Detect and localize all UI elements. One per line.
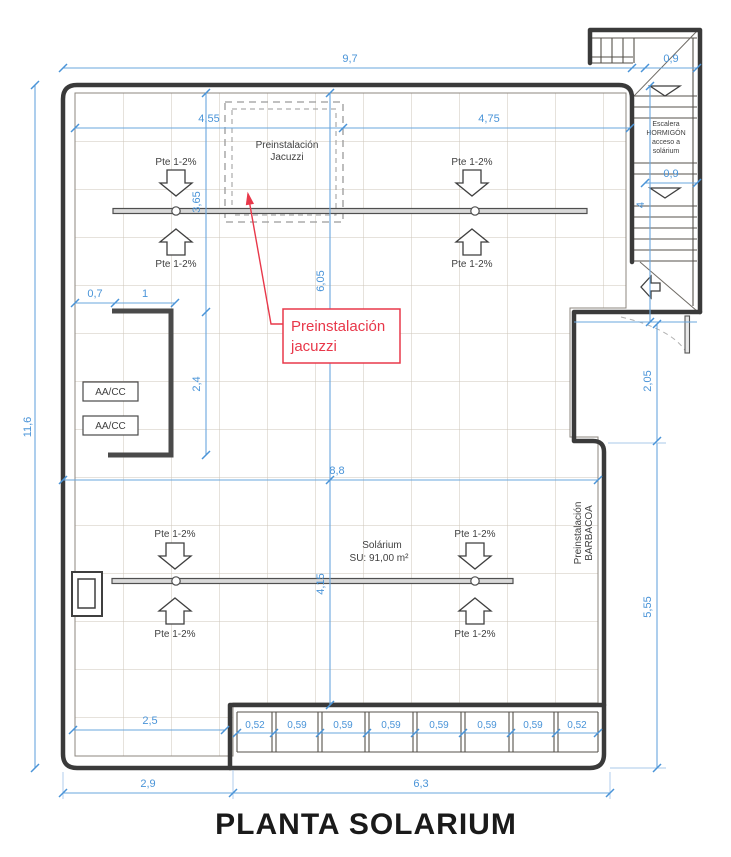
upper-drain-channel — [113, 207, 587, 215]
dim-aacc-height: 2,4 — [191, 376, 203, 391]
dim-slat: 0,52 — [245, 720, 265, 731]
slope-label: Pte 1-2% — [155, 157, 196, 168]
jacuzzi-area-label-line1: Preinstalación — [256, 140, 319, 151]
dim-jacuzzi-offset: 3,65 — [191, 191, 203, 212]
dim-total-width: 9,7 — [342, 53, 357, 65]
slope-label: Pte 1-2% — [454, 529, 495, 540]
callout-text-line2: jacuzzi — [290, 338, 337, 355]
stair-direction-arrow-mid — [650, 188, 680, 198]
dim-bottom-left: 2,9 — [140, 778, 155, 790]
dim-roof-right: 4,75 — [478, 113, 499, 125]
stair-label-line3: acceso a — [652, 139, 680, 146]
dim-center-height: 6,05 — [315, 270, 327, 291]
wall-vent-box — [72, 572, 102, 616]
dim-aacc-width: 1 — [142, 288, 148, 300]
callout-text-line1: Preinstalación — [291, 318, 385, 335]
barbacoa-label-line2: BARBACOA — [584, 505, 595, 561]
slope-label: Pte 1-2% — [454, 629, 495, 640]
slope-label: Pte 1-2% — [155, 259, 196, 270]
aacc-unit-label: AA/CC — [95, 387, 126, 398]
stair-direction-arrow-top — [650, 86, 680, 96]
slope-label: Pte 1-2% — [154, 629, 195, 640]
pergola-slat-strip — [237, 712, 598, 752]
stair-label-line1: Escalera — [652, 121, 679, 128]
dim-slat: 0,59 — [429, 720, 449, 731]
dim-mid-width: 8,8 — [329, 465, 344, 477]
dim-landing-depth: 2,05 — [642, 370, 654, 391]
drain-outlet — [471, 577, 479, 585]
barbacoa-label-line1: Preinstalación — [573, 502, 584, 565]
dim-lower-height: 4,15 — [315, 573, 327, 594]
dim-aacc-gap: 0,7 — [87, 288, 102, 300]
drawing-title: PLANTA SOLARIUM — [215, 808, 517, 841]
dim-slat: 0,59 — [381, 720, 401, 731]
drain-outlet — [172, 577, 180, 585]
dim-roof-left: 4,55 — [198, 113, 219, 125]
stair-label-line2: HORMIGÓN — [646, 128, 685, 137]
dim-bottom-right: 6,3 — [413, 778, 428, 790]
stair-label-line4: solárium — [653, 148, 680, 155]
dim-slat: 0,59 — [477, 720, 497, 731]
dim-slat: 0,59 — [333, 720, 353, 731]
drain-outlet — [172, 207, 180, 215]
architectural-drawing-page: Escalera HORMIGÓN acceso a solárium Prei… — [0, 0, 731, 852]
tiled-roof-surface — [75, 93, 626, 756]
drain-outlet — [471, 207, 479, 215]
jacuzzi-area-label-line2: Jacuzzi — [270, 152, 303, 163]
dim-right-height: 5,55 — [642, 596, 654, 617]
stair-label: Escalera HORMIGÓN acceso a solárium — [646, 121, 685, 155]
slope-label: Pte 1-2% — [451, 259, 492, 270]
dim-stair-width: 0,9 — [663, 168, 678, 180]
dim-bottom-inner: 2,5 — [142, 715, 157, 727]
solarium-name-label: Solárium — [362, 540, 401, 551]
dim-slat: 0,59 — [287, 720, 307, 731]
solarium-area-label: SU: 91,00 m² — [350, 553, 410, 564]
lower-drain-channel — [112, 577, 513, 585]
aacc-unit-label: AA/CC — [95, 421, 126, 432]
dim-slat: 0,52 — [567, 720, 587, 731]
dim-stair-run: 4 — [635, 202, 647, 208]
slope-label: Pte 1-2% — [451, 157, 492, 168]
dim-slat: 0,59 — [523, 720, 543, 731]
stair-winder-lines — [601, 38, 634, 63]
dim-stair-width-top: 0,9 — [663, 53, 678, 65]
slope-label: Pte 1-2% — [154, 529, 195, 540]
floor-plan-canvas: Escalera HORMIGÓN acceso a solárium Prei… — [0, 0, 731, 852]
dim-left-height: 11,6 — [22, 417, 34, 438]
